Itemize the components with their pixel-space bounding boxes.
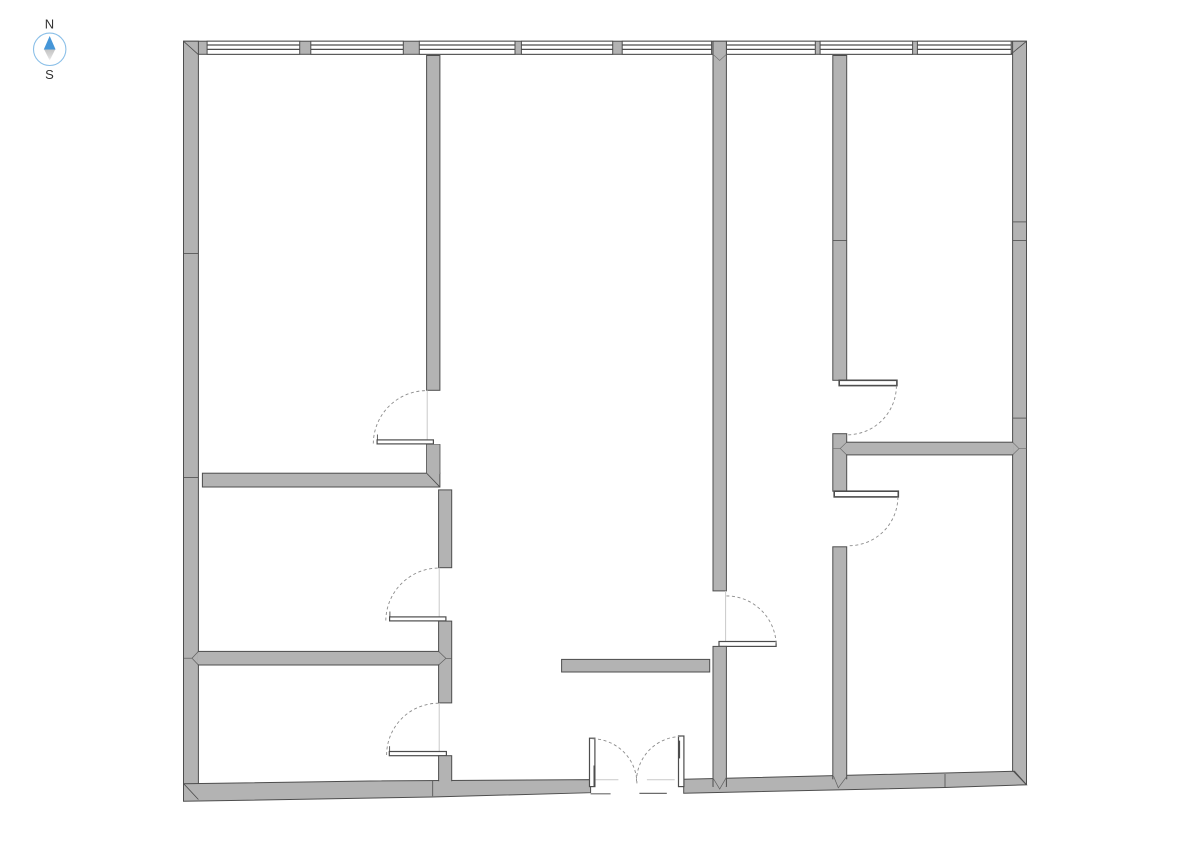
svg-text:N: N	[45, 17, 54, 32]
svg-text:S: S	[45, 67, 54, 82]
